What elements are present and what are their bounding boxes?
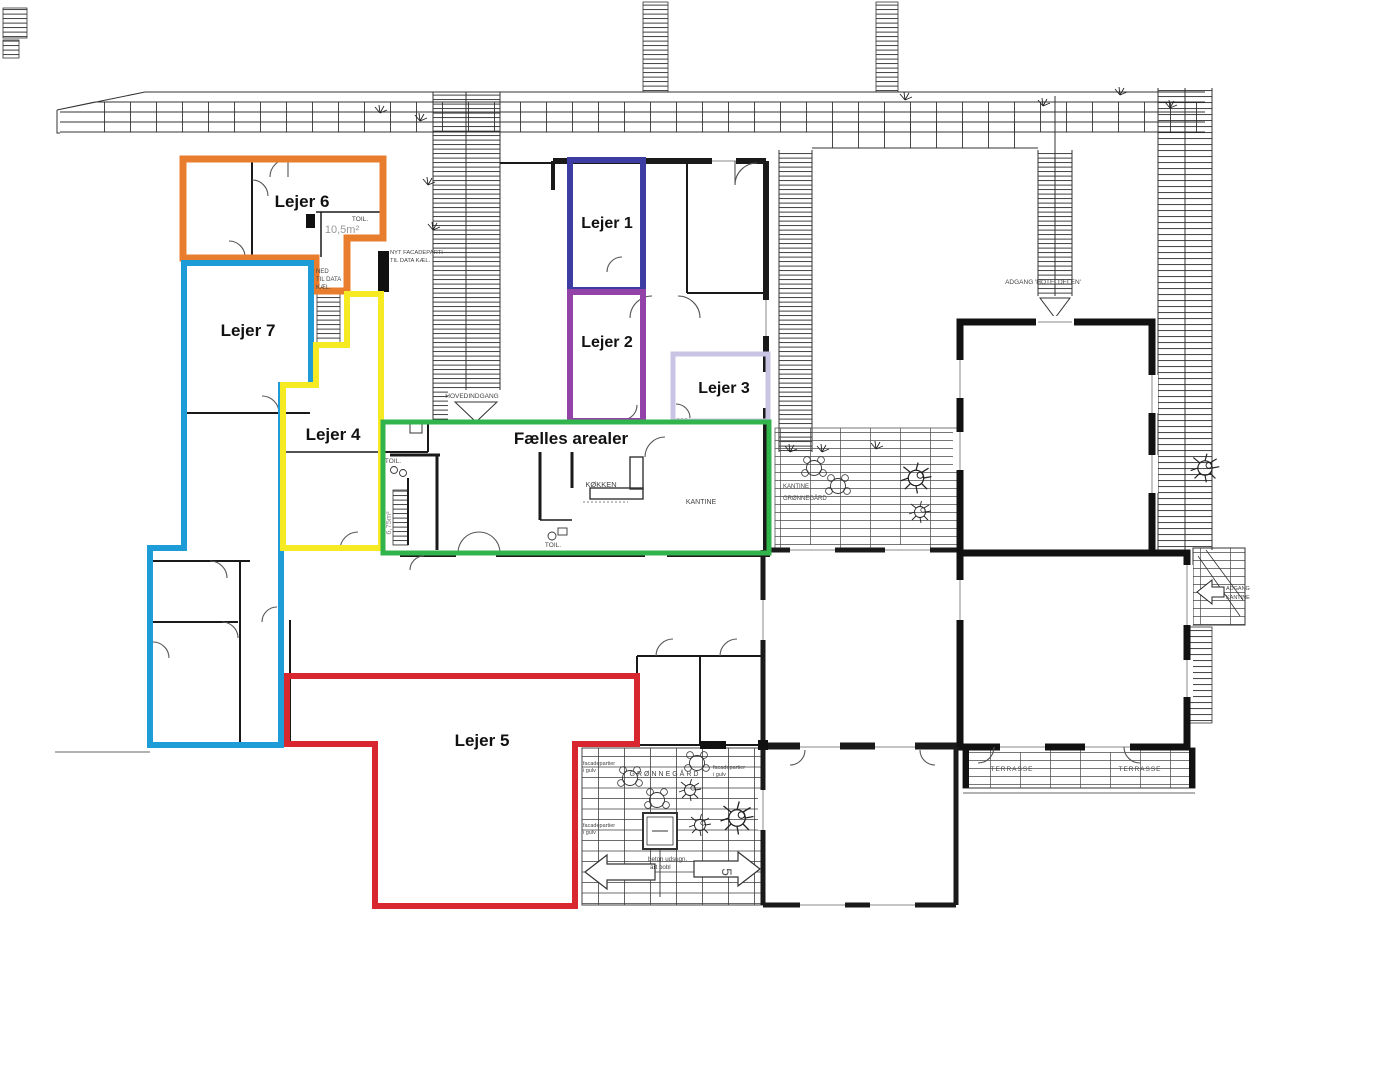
- canteen-yard-label-1: KANTINE: [783, 484, 809, 490]
- facade-note-label-1: NYT FACADEPARTI: [390, 250, 443, 256]
- east-of-lejer1-strip: [779, 150, 812, 452]
- facade-note-label-2: TIL DATA KÆL.: [390, 258, 431, 264]
- canteen-label: KANTINE: [686, 499, 717, 506]
- canteen-access-label-1: ADGANG: [1226, 586, 1250, 592]
- lejer-2-label: Lejer 2: [581, 334, 633, 351]
- canteen-yard-label-2: GRØNNEGÅRD: [783, 495, 827, 502]
- floor-plan-drawing: Lejer 6 Lejer 7 Lejer 4 Lejer 1 Lejer 2 …: [0, 0, 1400, 1067]
- faelles-arealer-label: Fælles arealer: [514, 429, 629, 448]
- canteen-access-label-2: KANTINE: [1226, 595, 1250, 601]
- toilet-1-area-label: 10,5m²: [325, 224, 360, 236]
- middle-right-building-walls: [758, 545, 958, 749]
- concrete-label-1: beton udsugn.: [648, 856, 688, 863]
- toilet-1-label: TOIL.: [352, 216, 368, 223]
- main-entrance-stair-strip: [433, 92, 504, 422]
- hotel-access-label: ADGANG 'HOTELDELEN': [1005, 279, 1081, 286]
- floor-glazing-3-label-a: facadepartier: [713, 765, 745, 771]
- stair-down-label-2: TIL DATA: [316, 277, 341, 283]
- bottom-middle-building-walls: [758, 740, 956, 909]
- stair-down-label-1: NED: [316, 269, 329, 275]
- courtyard-label: GRØNNEGÅRD: [630, 769, 701, 778]
- small-rooms-above-courtyard: [637, 639, 763, 749]
- top-vertical-strips: [643, 2, 898, 92]
- stair-down-label-3: KÆL.: [316, 285, 331, 291]
- right-edge-walkway-strip: [1158, 88, 1212, 550]
- main-entrance-label: HOVEDINDGANG: [445, 393, 498, 400]
- floor-glazing-2-label-b: i gulv: [583, 830, 596, 836]
- small-stair-675: [393, 490, 408, 545]
- lejer-5-label: Lejer 5: [455, 731, 510, 750]
- lower-right-edge-strip: [1190, 627, 1212, 723]
- terrace-1-label: TERRASSE: [990, 766, 1033, 773]
- top-left-hatch-boxes: [3, 8, 27, 58]
- lejer-4-label: Lejer 4: [306, 425, 361, 444]
- floor-glazing-3-label-b: i gulv: [713, 772, 726, 778]
- floor-glazing-1-label-b: i gulv: [583, 768, 596, 774]
- hotel-upper-building: [953, 316, 1158, 558]
- lejer-7-label: Lejer 7: [221, 321, 276, 340]
- stair-area-label: 6,75m²: [384, 511, 393, 535]
- concrete-label-2: art bobl: [650, 864, 671, 871]
- data-basement-stair: [317, 294, 340, 345]
- left-building-walls: [55, 159, 389, 752]
- lejer-6-label: Lejer 6: [275, 192, 330, 211]
- toilet-2-label: TOIL.: [385, 458, 401, 465]
- lejer-3-label: Lejer 3: [698, 380, 750, 397]
- floor-glazing-2-label-a: facadepartier: [583, 823, 615, 829]
- floor-glazing-1-label-a: facadepartier: [583, 761, 615, 767]
- terrace-2-label: TERRASSE: [1118, 766, 1161, 773]
- lejer-2-region: [570, 292, 643, 421]
- kitchen-label: KØKKEN: [585, 480, 616, 489]
- hotel-lower-building: [954, 553, 1193, 763]
- floor-plan-canvas: Lejer 6 Lejer 7 Lejer 4 Lejer 1 Lejer 2 …: [0, 0, 1400, 1067]
- lejer-1-label: Lejer 1: [581, 215, 633, 232]
- top-walkway-band: [57, 92, 1205, 148]
- stair-number-label: 5: [719, 868, 735, 876]
- toilet-3-label: TOIL.: [545, 542, 561, 549]
